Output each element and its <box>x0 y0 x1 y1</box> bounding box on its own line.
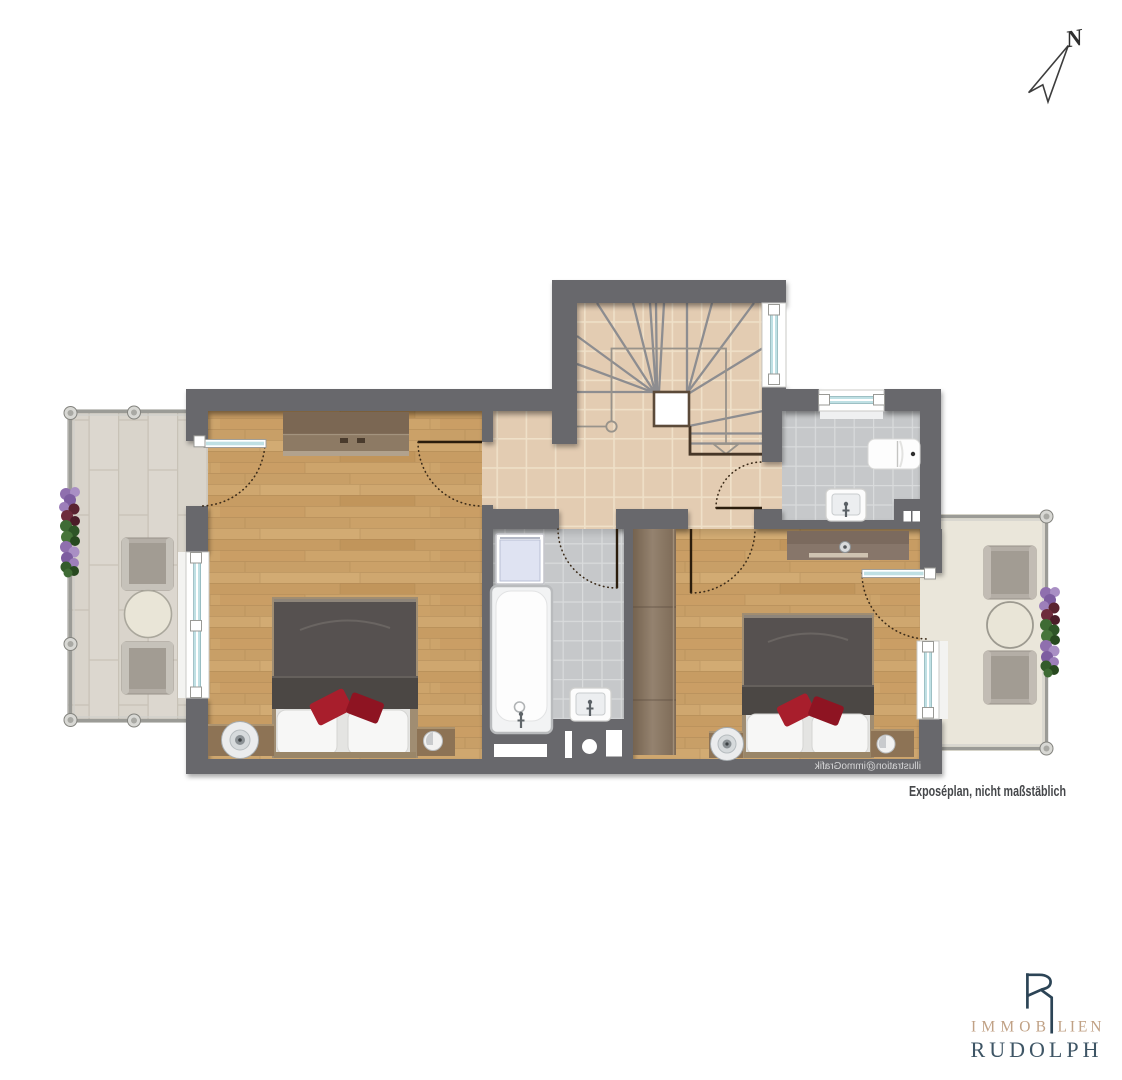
svg-text:IMMOB: IMMOB <box>971 1019 1046 1036</box>
svg-text:LIEN: LIEN <box>1058 1019 1102 1036</box>
svg-text:illustration@immoGrafik: illustration@immoGrafik <box>814 761 921 772</box>
svg-text:Exposéplan, nicht maßstäblich: Exposéplan, nicht maßstäblich <box>909 784 1066 800</box>
